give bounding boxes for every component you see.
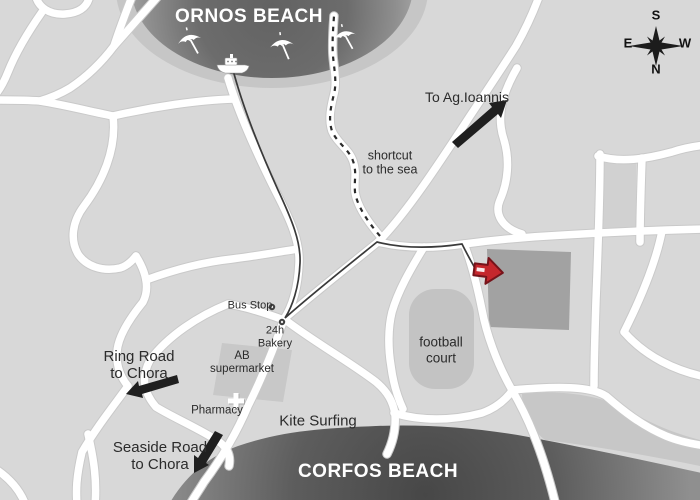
- destination-building: [487, 249, 571, 330]
- to-ag-ioannis-label: To Ag.Ioannis: [425, 89, 509, 105]
- compass-south-label: S: [652, 9, 661, 24]
- compass-rose-icon: [629, 26, 683, 66]
- ornos-corfos-beach-map: ORNOS BEACH CORFOS BEACH S E W N To Ag.I…: [0, 0, 700, 500]
- shortcut-label: shortcut to the sea: [363, 149, 418, 178]
- compass-east-label: E: [624, 37, 633, 52]
- compass-west-label: W: [679, 37, 691, 52]
- football-court-label: football court: [419, 334, 463, 365]
- supermarket-label: AB supermarket: [210, 350, 274, 376]
- city-block-patch: [602, 162, 636, 230]
- seaside-road-label: Seaside Road to Chora: [113, 439, 207, 474]
- ornos-beach-title: ORNOS BEACH: [175, 6, 323, 28]
- pharmacy-label: Pharmacy: [191, 404, 243, 417]
- kite-surfing-label: Kite Surfing: [279, 412, 357, 429]
- ring-road-label: Ring Road to Chora: [104, 348, 175, 383]
- compass-north-label: N: [651, 63, 660, 78]
- bus-stop-label: Bus Stop: [228, 300, 273, 313]
- corfos-beach-title: CORFOS BEACH: [298, 461, 458, 483]
- bakery-label: 24h Bakery: [258, 324, 292, 349]
